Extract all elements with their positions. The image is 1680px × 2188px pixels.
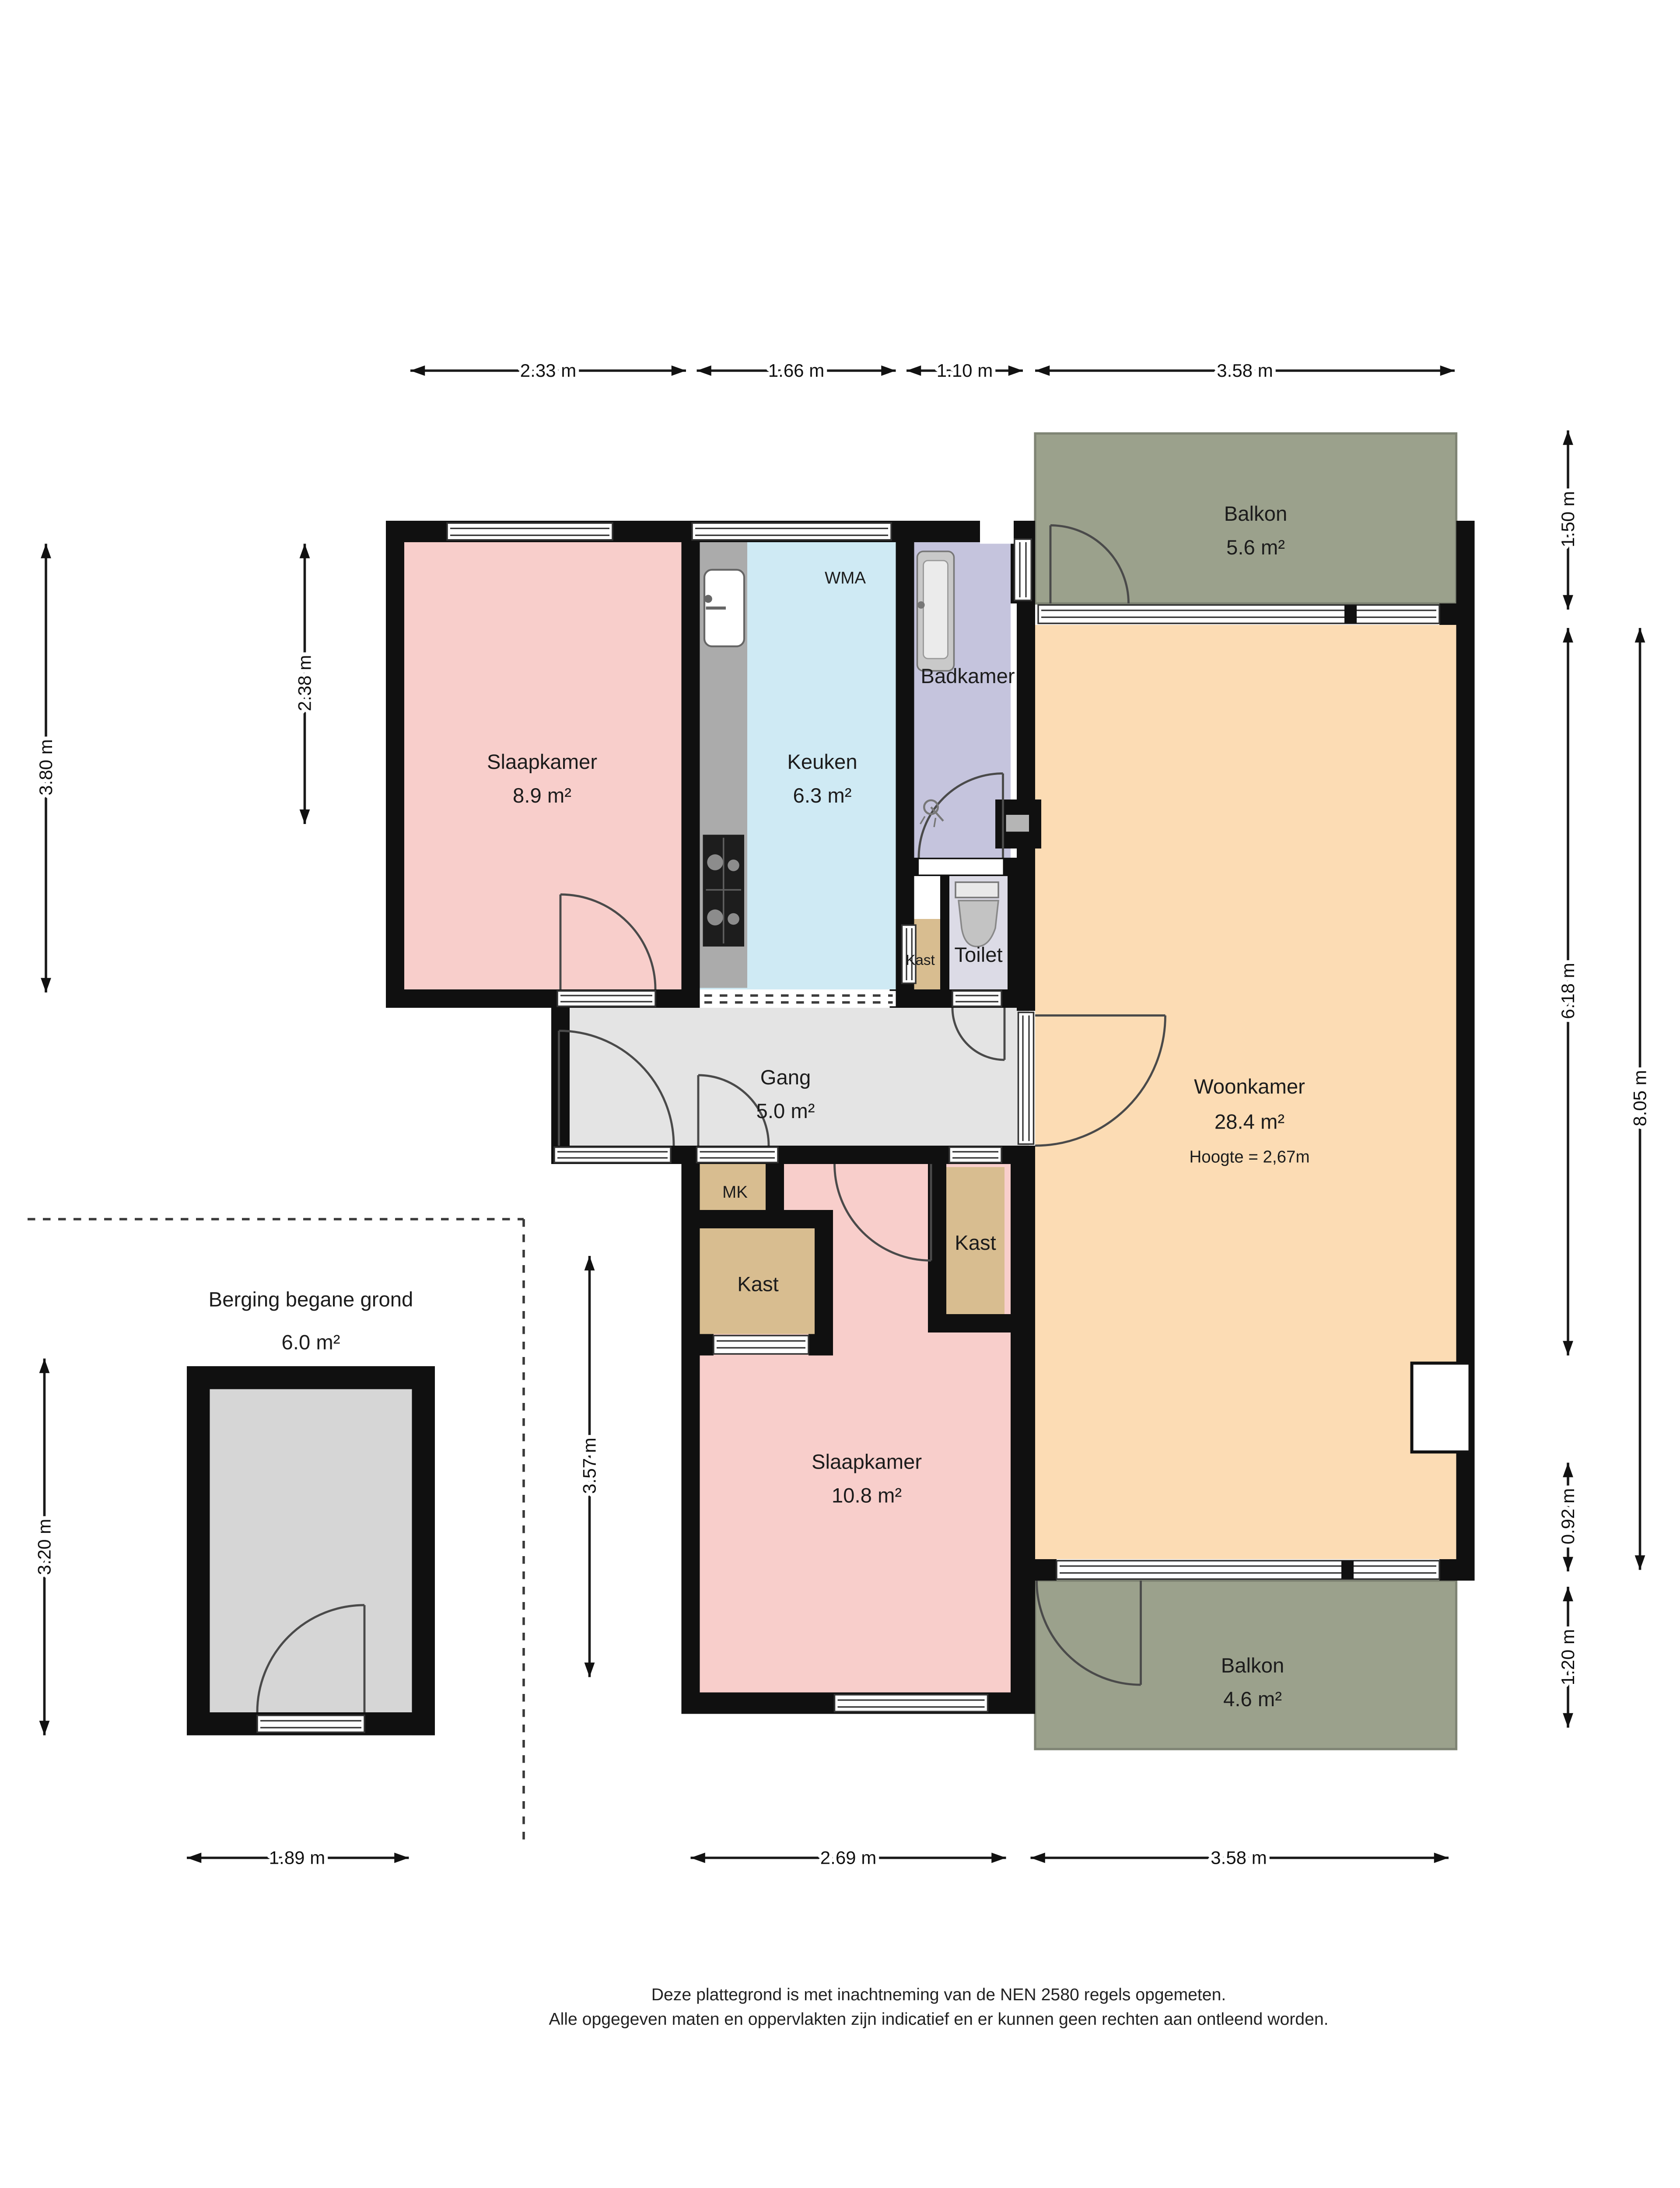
wall-kast-links-bottom-post1 <box>700 1334 714 1356</box>
label-slaapkamer1-name: Slaapkamer <box>487 750 597 774</box>
dim-label: 2.38 m <box>294 655 315 711</box>
label-keuken-name: Keuken <box>787 750 857 774</box>
label-slaapkamer1-area: 8.9 m² <box>513 784 571 807</box>
passage-keuken-gang <box>700 991 896 1006</box>
door-opening-slaapkamer1 <box>557 991 655 1006</box>
wall-kast-links-bottom-post2 <box>808 1334 833 1356</box>
dim-bottom-2: 2.69 m <box>691 1848 1006 1868</box>
dim-top-3: 1.10 m <box>906 360 1023 381</box>
wall-slaapkamer2-left <box>682 1146 700 1714</box>
kitchen-sink-icon <box>704 570 744 646</box>
dim-label: 1.89 m <box>269 1848 325 1868</box>
dim-left-1: 3.80 m <box>35 544 56 993</box>
label-gang-area: 5.0 m² <box>756 1100 815 1123</box>
wall-post-band-bottom-right <box>1439 1559 1456 1581</box>
dim-right-2: 6.18 m <box>1557 628 1578 1356</box>
bathroom-sink-icon <box>917 551 954 671</box>
label-balkon-boven-name: Balkon <box>1224 502 1287 526</box>
label-gang-name: Gang <box>760 1066 811 1089</box>
label-mk: MK <box>722 1183 748 1202</box>
footer-line-1: Deze plattegrond is met inachtneming van… <box>651 1985 1226 2004</box>
dim-right-1: 1.50 m <box>1557 431 1578 610</box>
window-slaapkamer1-top <box>447 523 612 540</box>
window-slaapkamer2-bottom <box>835 1695 988 1712</box>
dim-label: 3.58 m <box>1211 1848 1267 1868</box>
dim-right-5: 1.20 m <box>1557 1587 1578 1728</box>
door-opening-berging <box>257 1715 364 1732</box>
wall-slaapkamer1-keuken <box>682 542 700 989</box>
door-opening-woonkamer <box>1018 1013 1034 1144</box>
dim-label: 1.50 m <box>1557 491 1578 547</box>
label-woonkamer-area: 28.4 m² <box>1214 1111 1284 1134</box>
dim-label: 6.18 m <box>1557 963 1578 1019</box>
dim-label: 1.10 m <box>937 360 993 381</box>
dim-middle-2: 3.20 m <box>34 1359 55 1736</box>
dim-label: 8.05 m <box>1630 1070 1650 1126</box>
dim-label: 0.92 m <box>1557 1488 1578 1544</box>
dim-top-4: 3.58 m <box>1035 360 1455 381</box>
window-woonkamer-balkon-onder <box>1057 1561 1439 1579</box>
wall-niche <box>1412 1363 1470 1452</box>
label-balkon-onder-area: 4.6 m² <box>1223 1688 1282 1711</box>
label-slaapkamer2-name: Slaapkamer <box>812 1451 922 1474</box>
dim-label: 1.20 m <box>1557 1629 1578 1685</box>
dim-right-4: 0.92 m <box>1557 1463 1578 1572</box>
label-kast-links: Kast <box>737 1273 779 1296</box>
label-keuken-area: 6.3 m² <box>793 784 852 807</box>
wall-mk-kast-sep <box>682 1210 833 1228</box>
label-kast-rechts: Kast <box>955 1231 996 1255</box>
dim-label: 2.33 m <box>520 360 576 381</box>
wall-keuken-badkamer <box>896 542 914 989</box>
label-woonkamer-height: Hoogte = 2,67m <box>1189 1148 1309 1167</box>
label-wma: WMA <box>825 569 866 588</box>
shaft-inner <box>1006 815 1029 832</box>
dim-label: 3.57 m <box>579 1438 600 1494</box>
wall-post-band-top-right <box>1439 603 1456 625</box>
dim-middle-1: 3.57 m <box>579 1256 600 1677</box>
door-opening-mk <box>697 1147 778 1163</box>
label-toilet: Toilet <box>954 943 1002 967</box>
label-badkamer: Badkamer <box>920 665 1015 688</box>
window-keuken-top <box>692 523 891 540</box>
door-opening-kast-rechts <box>949 1147 1001 1163</box>
dim-bottom-3: 3.58 m <box>1031 1848 1449 1868</box>
label-balkon-boven-area: 5.6 m² <box>1226 536 1285 559</box>
door-opening-badkamer <box>919 859 1003 875</box>
dim-label: 3.80 m <box>35 739 56 795</box>
wall-kast-rechts-bottom <box>928 1314 1029 1332</box>
wall-kast-links-right <box>815 1210 833 1356</box>
wall-post-band-bottom-left <box>1035 1559 1057 1581</box>
label-slaapkamer2-area: 10.8 m² <box>832 1484 902 1508</box>
footer: Deze plattegrond is met inachtneming van… <box>549 1985 1328 2029</box>
dim-label: 3.58 m <box>1217 360 1273 381</box>
window-mullion-bottom <box>1341 1561 1354 1579</box>
window-badkamer-side <box>1015 539 1032 600</box>
label-balkon-onder-name: Balkon <box>1221 1654 1284 1677</box>
floorplan-page: Slaapkamer 8.9 m² Keuken 6.3 m² WMA Badk… <box>0 0 1680 2188</box>
wall-toilet-right <box>1008 876 1017 1008</box>
window-mullion-top <box>1344 605 1357 624</box>
door-opening-toilet <box>952 991 1001 1006</box>
dim-label: 2.69 m <box>820 1848 876 1868</box>
door-opening-voordeur <box>554 1147 671 1163</box>
entry-opening <box>980 519 1014 544</box>
door-opening-kast-links <box>714 1336 808 1354</box>
wall-berging-right <box>412 1366 435 1736</box>
wall-balkon-onder-left <box>1017 1559 1035 1651</box>
dim-label: 3.20 m <box>34 1519 55 1575</box>
label-berging-area: 6.0 m² <box>282 1331 340 1354</box>
wall-berging-top <box>187 1366 435 1389</box>
wall-berging-left <box>187 1366 210 1736</box>
window-woonkamer-balkon-boven <box>1038 605 1439 624</box>
footer-line-2: Alle opgegeven maten en oppervlakten zij… <box>549 2010 1328 2029</box>
floorplan-drawing: Slaapkamer 8.9 m² Keuken 6.3 m² WMA Badk… <box>0 0 1680 2188</box>
wall-left <box>386 521 404 1008</box>
dim-label: 1.66 m <box>768 360 824 381</box>
label-berging-name: Berging begane grond <box>209 1288 413 1311</box>
stove-icon <box>703 835 745 947</box>
dim-bottom-1: 1.89 m <box>187 1848 409 1868</box>
dim-left-2: 2.38 m <box>294 544 315 824</box>
room-berging <box>210 1389 412 1713</box>
dim-top-1: 2.33 m <box>410 360 686 381</box>
dim-right-3: 8.05 m <box>1630 628 1650 1570</box>
label-woonkamer-name: Woonkamer <box>1194 1075 1305 1098</box>
wall-gang-left <box>551 989 570 1164</box>
wall-toilet-left <box>940 876 949 1008</box>
label-kast-klein: Kast <box>906 952 935 968</box>
dim-top-2: 1.66 m <box>697 360 896 381</box>
